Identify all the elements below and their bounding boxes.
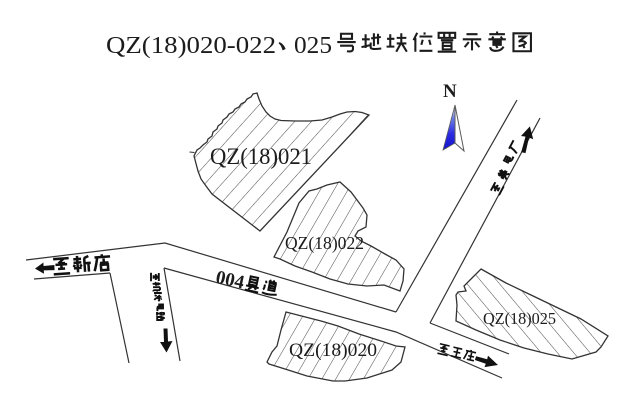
svg-text:QZ(18)020: QZ(18)020: [289, 340, 377, 361]
svg-text:QZ(18)020-022: QZ(18)020-022: [106, 33, 276, 59]
svg-text:N: N: [443, 81, 457, 102]
svg-text:QZ(18)022: QZ(18)022: [285, 233, 364, 253]
svg-text:QZ(18)025: QZ(18)025: [483, 309, 556, 328]
svg-text:QZ(18)021: QZ(18)021: [210, 144, 312, 170]
svg-text:025: 025: [294, 33, 332, 59]
